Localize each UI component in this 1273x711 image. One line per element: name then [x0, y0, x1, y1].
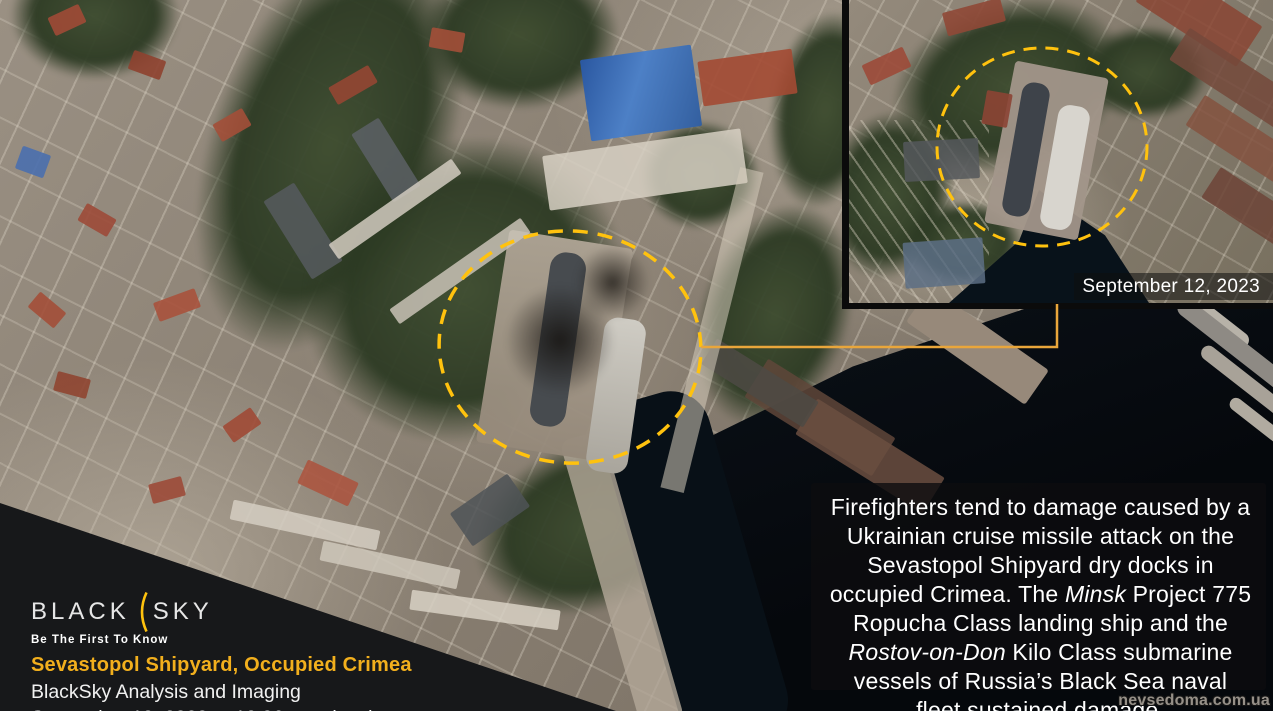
inset-annotation-layer [849, 0, 1273, 303]
inset-date-label: September 12, 2023 [1074, 273, 1273, 300]
watermark: nevsedoma.com.ua [1118, 692, 1270, 710]
logo-tagline: Be The First To Know [31, 634, 412, 646]
ship-name-minsk: Minsk [1065, 581, 1126, 607]
ship-name-rostov-on-don: Rostov-on-Don [849, 639, 1006, 665]
burn-damage-smudge [575, 245, 650, 320]
blue-roof [15, 146, 51, 179]
red-roof [148, 476, 186, 504]
annotated-satellite-image: September 12, 2023 Firefighters tend to … [0, 0, 1273, 711]
red-roof [297, 459, 359, 506]
caption-box: Firefighters tend to damage caused by a … [811, 483, 1266, 690]
capture-datetime: September 13, 2023 at 12:06 p.m. local [31, 707, 412, 711]
location-title: Sevastopol Shipyard, Occupied Crimea [31, 654, 412, 677]
highlight-circle-before [937, 48, 1147, 246]
logo-swoosh-icon [135, 591, 150, 633]
apartment-row [319, 541, 460, 590]
red-roof [153, 288, 201, 322]
logo-text-sky: SKY [153, 599, 213, 625]
logo-text-black: BLACK [31, 599, 130, 625]
blue-roof-building [580, 45, 702, 142]
red-roof [53, 371, 91, 399]
credit-line: BlackSky Analysis and Imaging [31, 681, 412, 704]
red-roof [222, 407, 261, 443]
apartment-row [230, 500, 381, 551]
red-roof [28, 291, 67, 328]
inset-before-image: September 12, 2023 [842, 0, 1273, 309]
red-roof [77, 203, 116, 237]
